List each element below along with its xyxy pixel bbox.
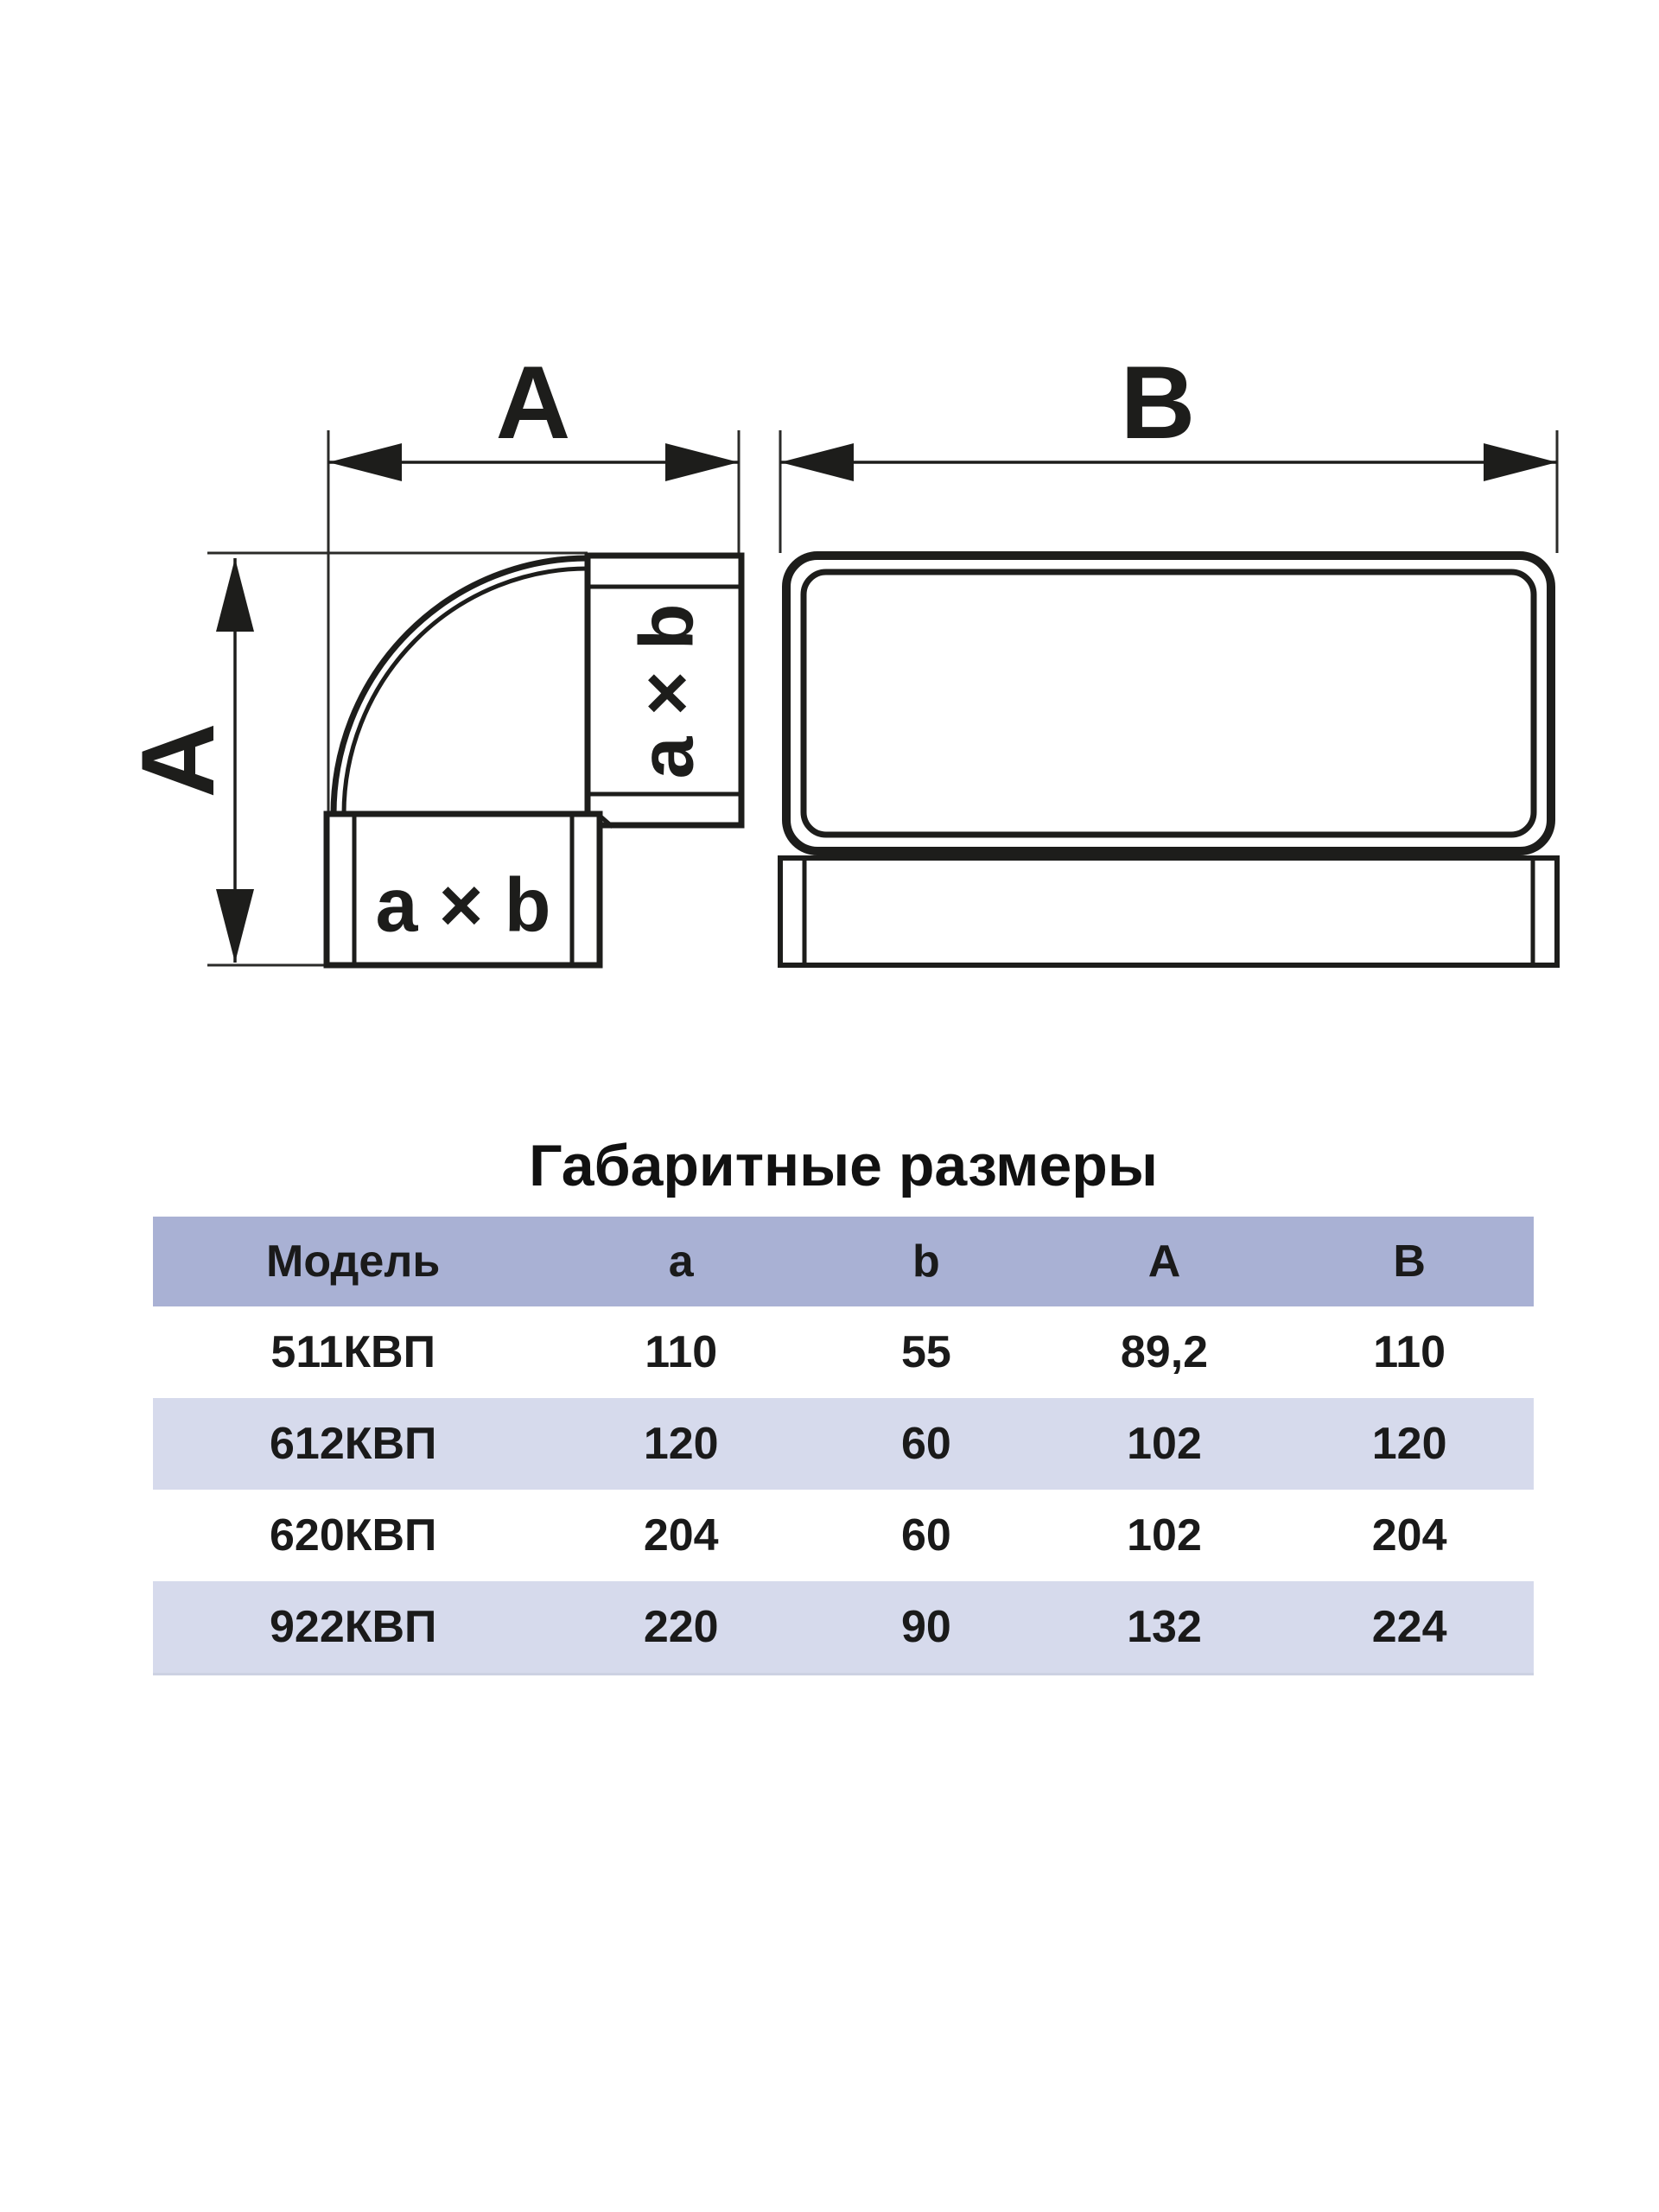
duct-socket-outer [786, 556, 1551, 851]
dimension-drawings: A A a × b a × b B [0, 0, 1659, 1080]
dim-label-a-horizontal: A [496, 345, 571, 461]
column-header-a: a [553, 1239, 809, 1284]
value-A: 102 [1044, 1421, 1286, 1466]
arrowhead-right-icon [1484, 443, 1557, 481]
duct-body [780, 858, 1557, 965]
elbow-drawing: A A a × b a × b [120, 345, 741, 965]
arrowhead-right-icon [665, 443, 739, 481]
table-header-row: Модель a b A B [153, 1217, 1534, 1306]
value-B: 110 [1285, 1330, 1534, 1375]
value-a: 204 [553, 1513, 809, 1558]
arrowhead-down-icon [216, 889, 254, 963]
arrowhead-up-icon [216, 558, 254, 632]
value-B: 204 [1285, 1513, 1534, 1558]
elbow-outer-arc [334, 558, 588, 814]
table-row: 620КВП 204 60 102 204 [153, 1490, 1534, 1581]
table-row: 511КВП 110 55 89,2 110 [153, 1306, 1534, 1398]
value-b: 60 [809, 1513, 1044, 1558]
column-header-A: A [1044, 1239, 1286, 1284]
value-B: 120 [1285, 1421, 1534, 1466]
elbow-inner-arc [344, 569, 588, 814]
arrowhead-left-icon [780, 443, 854, 481]
arrowhead-left-icon [328, 443, 402, 481]
column-header-B: B [1285, 1239, 1534, 1284]
model-cell: 612КВП [153, 1421, 553, 1466]
dim-label-a-vertical: A [120, 723, 236, 798]
model-cell: 511КВП [153, 1330, 553, 1375]
value-A: 89,2 [1044, 1330, 1286, 1375]
value-A: 102 [1044, 1513, 1286, 1558]
port-size-label: a × b [376, 862, 551, 948]
model-cell: 922КВП [153, 1605, 553, 1649]
value-b: 55 [809, 1330, 1044, 1375]
column-header-model: Модель [153, 1239, 553, 1284]
dim-label-b: B [1121, 345, 1196, 461]
section-title: Габаритные размеры [153, 1134, 1534, 1198]
value-b: 90 [809, 1605, 1044, 1649]
value-b: 60 [809, 1421, 1044, 1466]
model-cell: 620КВП [153, 1513, 553, 1558]
value-a: 120 [553, 1421, 809, 1466]
duct-drawing: B [780, 345, 1557, 965]
value-a: 220 [553, 1605, 809, 1649]
dimensions-table: Модель a b A B 511КВП 110 55 89,2 110 61… [153, 1217, 1534, 1675]
table-row: 922КВП 220 90 132 224 [153, 1581, 1534, 1673]
value-a: 110 [553, 1330, 809, 1375]
port-size-label-rotated: a × b [624, 604, 709, 779]
column-header-b: b [809, 1239, 1044, 1284]
value-B: 224 [1285, 1605, 1534, 1649]
table-row: 612КВП 120 60 102 120 [153, 1398, 1534, 1490]
value-A: 132 [1044, 1605, 1286, 1649]
